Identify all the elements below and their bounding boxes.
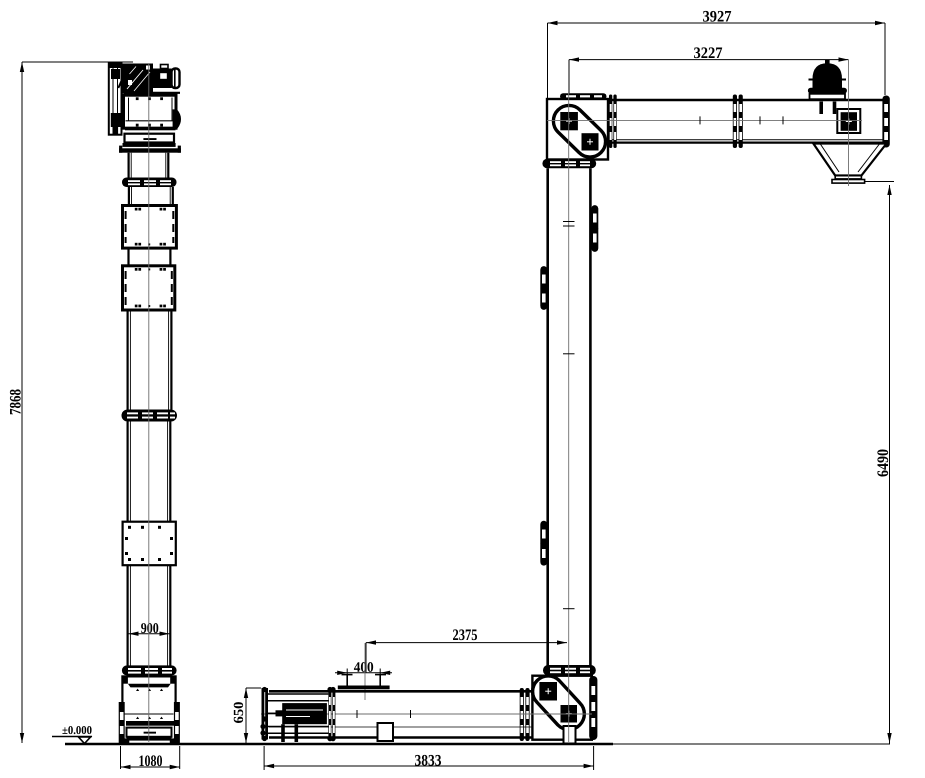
- svg-text:6490: 6490: [875, 449, 892, 477]
- svg-text:650: 650: [232, 701, 247, 723]
- svg-text:900: 900: [141, 621, 159, 637]
- svg-text:±0.000: ±0.000: [62, 723, 92, 737]
- svg-text:2375: 2375: [452, 627, 477, 644]
- svg-text:3227: 3227: [693, 45, 722, 62]
- svg-text:3833: 3833: [414, 752, 441, 769]
- svg-text:400: 400: [354, 660, 374, 676]
- svg-text:7868: 7868: [7, 389, 24, 415]
- svg-text:3927: 3927: [702, 8, 731, 25]
- svg-text:1080: 1080: [138, 753, 162, 770]
